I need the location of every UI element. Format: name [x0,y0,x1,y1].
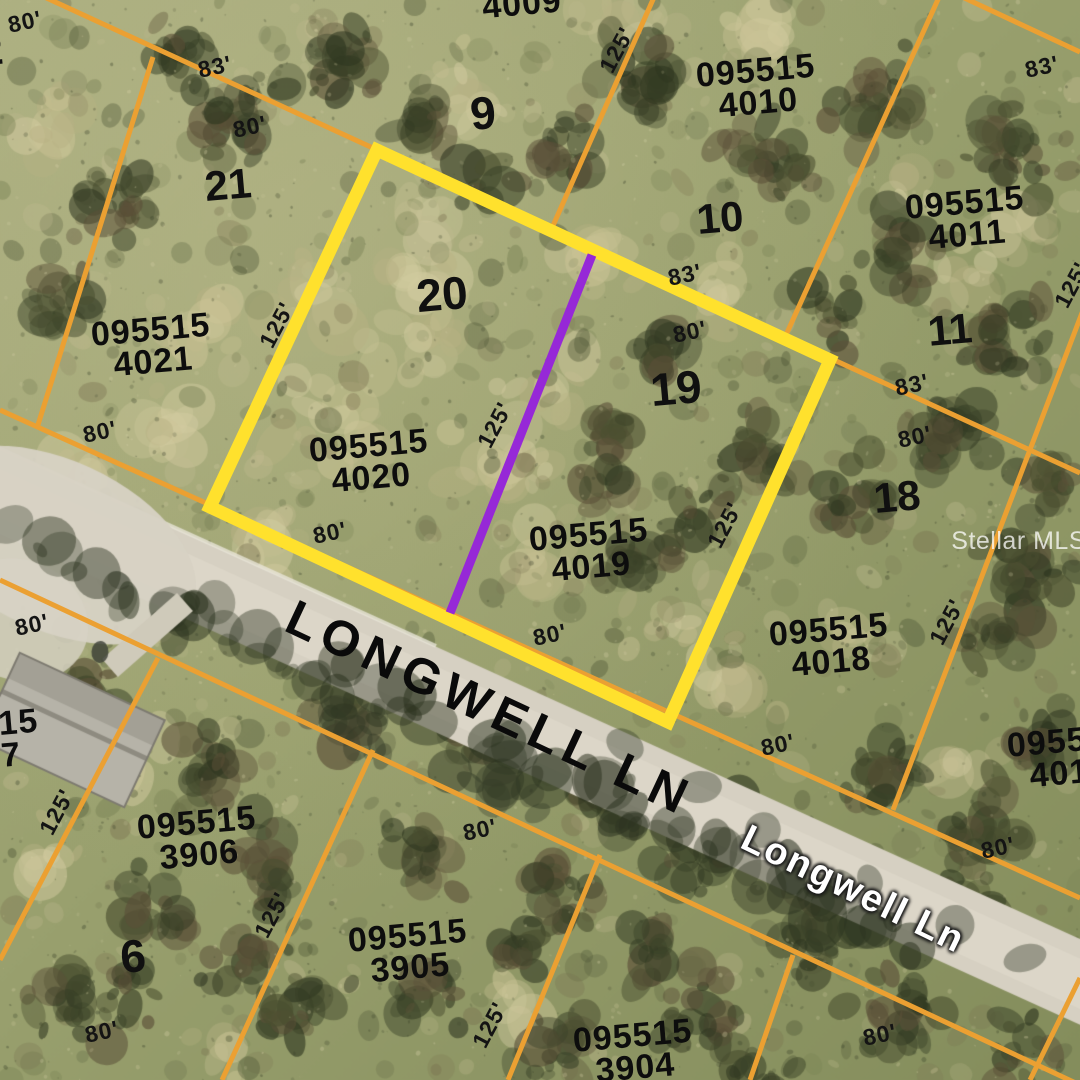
dimension-label: 125' [702,498,748,553]
dimension-label: 125' [249,888,295,943]
road-name-label: Longwell Ln [734,817,972,962]
dimension-label: 125' [1049,258,1080,313]
dimension-label: 83' [1023,50,1062,83]
road-name-label: LONGWELL LN [277,588,703,828]
watermark: Stellar MLS [951,527,1080,556]
lot-number-label: 21 [203,159,254,211]
parcel-apn-label: 0955154019 [528,514,653,589]
dimension-label: 125' [254,298,300,353]
aerial-parcel-map: 4009095515401009551540110955154021095515… [0,0,1080,1080]
dimension-label: 80' [83,1015,122,1048]
dimension-label: 80' [461,813,500,846]
lot-number-label: 9 [468,85,498,141]
dimension-label: 125' [924,595,970,650]
dimension-label: 80' [896,420,935,453]
dimension-label: 83' [893,368,932,401]
parcel-apn-label: 0955154021 [90,309,215,384]
dimension-label: 80' [531,618,570,651]
dimension-label: 80' [13,608,52,641]
parcel-apn-label: 0955153906 [136,802,261,877]
lot-number-label: 10 [695,192,746,244]
parcel-apn-label: 0955154017 [1006,720,1080,795]
parcel-apn-label: 0955154011 [904,182,1029,257]
lot-number-label: 2 [0,29,5,76]
dimension-label: 80' [979,831,1018,864]
lot-number-label: 6 [118,928,148,984]
dimension-label: 125' [467,998,513,1053]
parcel-apn-label: 0955154018 [768,609,893,684]
dimension-label: 80' [81,415,120,448]
dimension-label: 83' [196,50,235,83]
dimension-label: 80' [759,728,798,761]
map-labels-layer: 4009095515401009551540110955154021095515… [0,0,1080,1080]
lot-number-label: 19 [648,359,704,417]
dimension-label: 80' [861,1018,900,1051]
parcel-apn-label: 0955154020 [308,425,433,500]
dimension-label: 125' [594,23,640,78]
lot-number-label: 18 [872,471,923,523]
dimension-label: 125' [472,398,518,453]
parcel-apn-label: 0955153904 [572,1015,697,1080]
dimension-label: 83' [666,258,705,291]
lot-number-label: 20 [414,265,470,323]
dimension-label: 125' [34,785,80,840]
parcel-apn-label: 0955153905 [347,915,472,990]
parcel-apn-label: 0955153907 [0,705,42,780]
dimension-label: 80' [231,110,270,143]
lot-number-label: 11 [926,304,974,356]
parcel-apn-label: 4009 [481,0,563,24]
dimension-label: 80' [311,516,350,549]
parcel-apn-label: 0955154010 [695,50,820,125]
dimension-label: 80' [671,315,710,348]
dimension-label: 80' [6,5,45,38]
